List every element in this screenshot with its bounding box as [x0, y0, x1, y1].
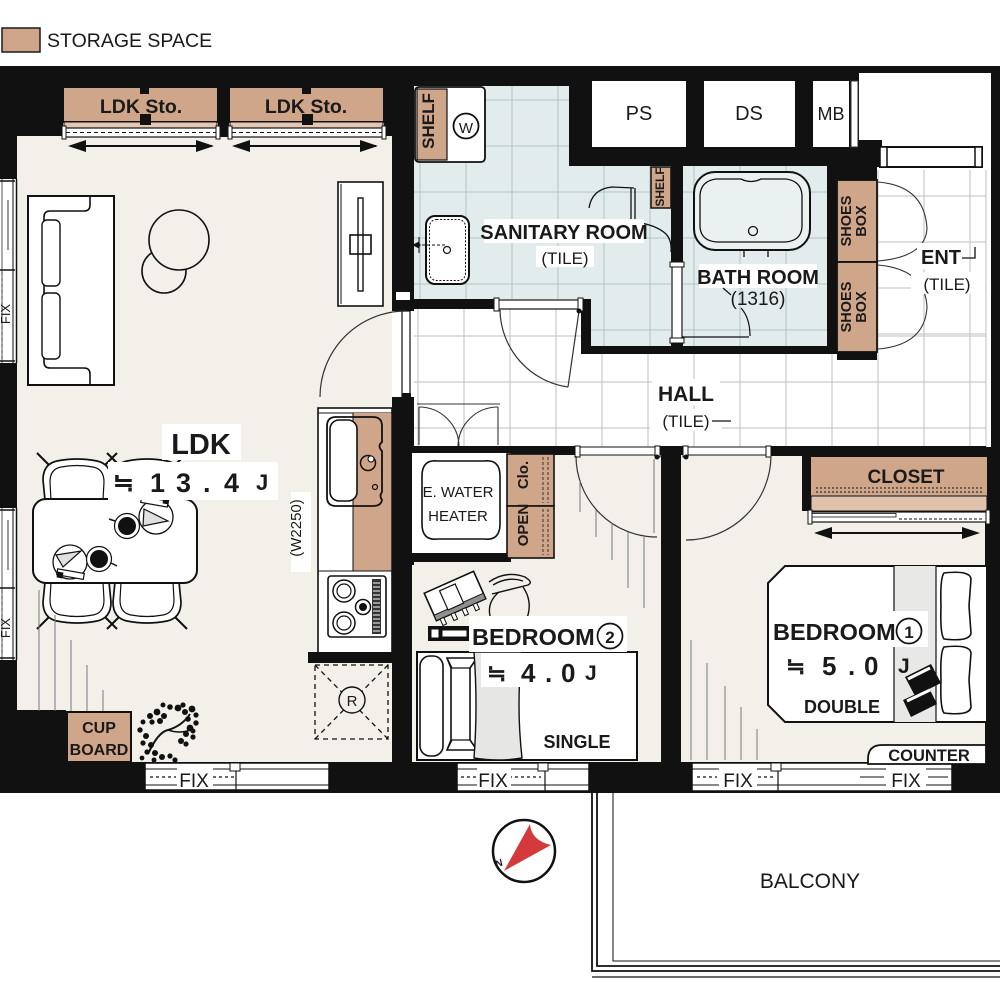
svg-text:4: 4 — [521, 658, 536, 688]
svg-text:J: J — [898, 655, 910, 678]
svg-text:ENT: ENT — [921, 247, 961, 269]
svg-text:W: W — [459, 120, 474, 137]
svg-text:E. WATER: E. WATER — [423, 484, 494, 501]
svg-text:PS: PS — [626, 103, 653, 125]
svg-text:SINGLE: SINGLE — [543, 732, 610, 752]
svg-text:FIX: FIX — [0, 304, 13, 325]
svg-text:BALCONY: BALCONY — [760, 870, 860, 893]
svg-text:(TILE): (TILE) — [662, 412, 709, 431]
svg-text:0: 0 — [561, 658, 575, 688]
svg-text:.: . — [848, 651, 855, 681]
svg-text:FIX: FIX — [0, 618, 13, 639]
svg-text:FIX: FIX — [179, 771, 209, 792]
svg-text:LDK: LDK — [171, 429, 231, 461]
svg-text:1: 1 — [904, 623, 913, 642]
svg-text:≒: ≒ — [487, 660, 506, 686]
svg-text:STORAGE SPACE: STORAGE SPACE — [47, 30, 212, 52]
svg-text:3: 3 — [176, 468, 191, 498]
svg-text:COUNTER: COUNTER — [888, 747, 970, 765]
svg-text:OPEN: OPEN — [515, 504, 532, 547]
svg-text:≒: ≒ — [786, 653, 805, 679]
svg-text:(1316): (1316) — [731, 289, 786, 310]
svg-text:BOX: BOX — [854, 205, 870, 237]
svg-text:FIX: FIX — [478, 771, 508, 792]
svg-text:(TILE): (TILE) — [923, 275, 970, 294]
svg-text:CLOSET: CLOSET — [867, 467, 944, 488]
svg-text:LDK Sto.: LDK Sto. — [100, 96, 182, 118]
svg-text:.: . — [545, 658, 552, 688]
svg-text:BOX: BOX — [854, 291, 870, 323]
svg-text:SHELF: SHELF — [419, 93, 438, 149]
svg-text:CUP: CUP — [82, 720, 116, 737]
svg-text:DOUBLE: DOUBLE — [804, 697, 880, 717]
svg-text:MB: MB — [818, 104, 845, 124]
svg-text:Clo.: Clo. — [515, 461, 532, 489]
svg-text:4: 4 — [224, 468, 239, 498]
svg-text:5: 5 — [822, 651, 836, 681]
svg-text:≒: ≒ — [113, 469, 134, 497]
svg-text:BATH ROOM: BATH ROOM — [697, 267, 819, 289]
svg-text:LDK Sto.: LDK Sto. — [265, 96, 347, 118]
svg-text:1: 1 — [150, 468, 165, 498]
svg-text:0: 0 — [864, 651, 878, 681]
svg-text:SHELF: SHELF — [653, 167, 667, 206]
svg-text:.: . — [203, 468, 211, 498]
svg-text:HEATER: HEATER — [428, 508, 488, 525]
svg-text:BOARD: BOARD — [70, 742, 129, 759]
svg-text:FIX: FIX — [891, 771, 921, 792]
svg-text:R: R — [347, 693, 358, 710]
svg-text:SANITARY ROOM: SANITARY ROOM — [480, 222, 647, 244]
svg-text:BEDROOM: BEDROOM — [773, 619, 896, 645]
svg-text:2: 2 — [605, 628, 614, 647]
svg-text:J: J — [256, 470, 268, 495]
svg-text:SHOES: SHOES — [839, 195, 855, 246]
svg-text:HALL: HALL — [658, 383, 714, 406]
svg-text:FIX: FIX — [723, 771, 753, 792]
svg-text:(TILE): (TILE) — [541, 249, 588, 268]
svg-text:J: J — [585, 662, 597, 685]
svg-text:SHOES: SHOES — [839, 281, 855, 332]
svg-text:DS: DS — [735, 103, 763, 125]
svg-text:(W2250): (W2250) — [288, 499, 305, 557]
svg-text:BEDROOM: BEDROOM — [472, 624, 595, 650]
